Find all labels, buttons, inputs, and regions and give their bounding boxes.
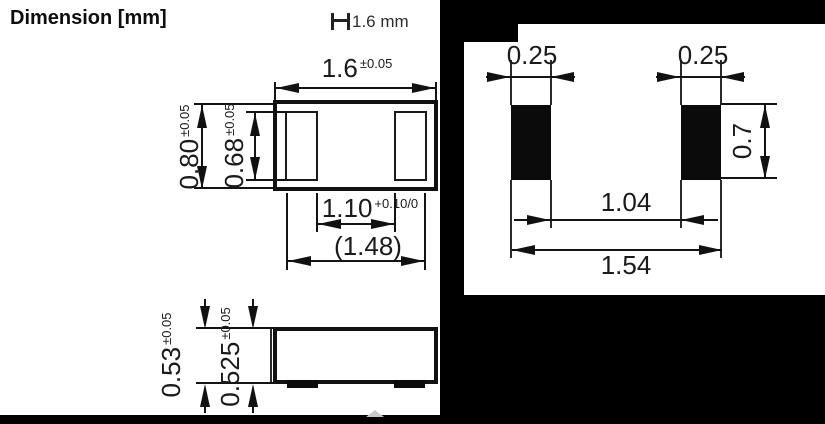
dim-tolerance: ±0.05 (218, 307, 233, 339)
arrowhead-left-icon (288, 256, 311, 266)
scale-bracket-bar (334, 19, 347, 22)
figure-title: Dimension [mm] (10, 7, 167, 30)
solder-pad-left (511, 105, 551, 180)
extension-line (435, 82, 437, 101)
arrowhead-left-icon (512, 245, 535, 255)
dim-pad-gap: 1.04 (586, 189, 666, 215)
dim-value: 0.525 (215, 342, 245, 407)
arrowhead-down-icon (250, 157, 260, 180)
scale-label: 1.6 mm (352, 12, 409, 32)
dim-overall-span: 1.54 (586, 252, 666, 278)
dim-value: 0.80 (174, 139, 204, 190)
dim-value: 0.53 (156, 347, 186, 398)
dim-terminal-inner-gap: 1.10+0.10/0 (320, 195, 420, 221)
dim-terminal-height: 0.68±0.05 (221, 103, 247, 188)
dim-value: 0.25 (507, 40, 558, 70)
dim-value: 1.6 (322, 53, 358, 83)
arrowhead-left-icon (721, 72, 744, 82)
terminal-right-outline (394, 111, 427, 181)
dim-value: 0.25 (678, 40, 729, 70)
dim-total-height: 0.53±0.05 (158, 312, 184, 397)
side-view-terminal-right (394, 380, 425, 388)
dim-tolerance: +0.10/0 (374, 196, 418, 211)
dim-value: (1.48) (334, 231, 402, 261)
dimension-line (204, 404, 206, 413)
arrowhead-up-icon (250, 113, 260, 136)
scale-bracket-icon (331, 13, 350, 30)
dim-body-width: 1.6±0.05 (277, 55, 437, 81)
dim-pad-width-left: 0.25 (497, 42, 567, 68)
dim-tolerance: ±0.05 (159, 312, 174, 344)
arrowhead-down-icon (200, 306, 210, 329)
arrowhead-down-icon (760, 156, 770, 179)
arrowhead-right-icon (657, 72, 680, 82)
dim-tolerance: ±0.05 (222, 103, 237, 135)
arrowhead-right-icon (412, 83, 435, 93)
dimension-line (252, 404, 254, 413)
dim-value: 0.68 (219, 138, 249, 189)
dim-value: 1.10 (322, 193, 373, 223)
terminal-left-outline (285, 111, 318, 181)
scan-artifact (366, 410, 384, 417)
dim-body-height: 0.80±0.05 (176, 104, 202, 189)
side-view-terminal-left (287, 380, 318, 388)
dim-tolerance: ±0.05 (177, 104, 192, 136)
side-view-end-face-line (270, 328, 272, 383)
dim-value: 1.54 (601, 250, 652, 280)
arrowhead-right-icon (487, 72, 510, 82)
arrowhead-left-icon (276, 83, 299, 93)
side-view-body-outline (273, 327, 438, 384)
arrowhead-right-icon (527, 215, 550, 225)
dim-pad-width-right: 0.25 (668, 42, 738, 68)
arrowhead-left-icon (551, 72, 574, 82)
dim-pad-height: 0.7 (729, 123, 755, 159)
dim-value: 0.7 (727, 123, 757, 159)
dim-terminal-outer-span: (1.48) (318, 233, 418, 259)
arrowhead-up-icon (760, 105, 770, 128)
datasheet-dimension-figure: Dimension [mm] 1.6 mm 1.6±0.05 0.80±0.05… (0, 0, 825, 424)
arrowhead-right-icon (699, 245, 722, 255)
dim-value: 1.04 (601, 187, 652, 217)
solder-pad-right (681, 105, 721, 180)
extension-line (424, 193, 426, 270)
arrowhead-left-icon (681, 215, 704, 225)
arrowhead-down-icon (248, 306, 258, 329)
dim-tolerance: ±0.05 (360, 56, 392, 71)
dim-side-body-height: 0.525±0.05 (217, 307, 243, 407)
